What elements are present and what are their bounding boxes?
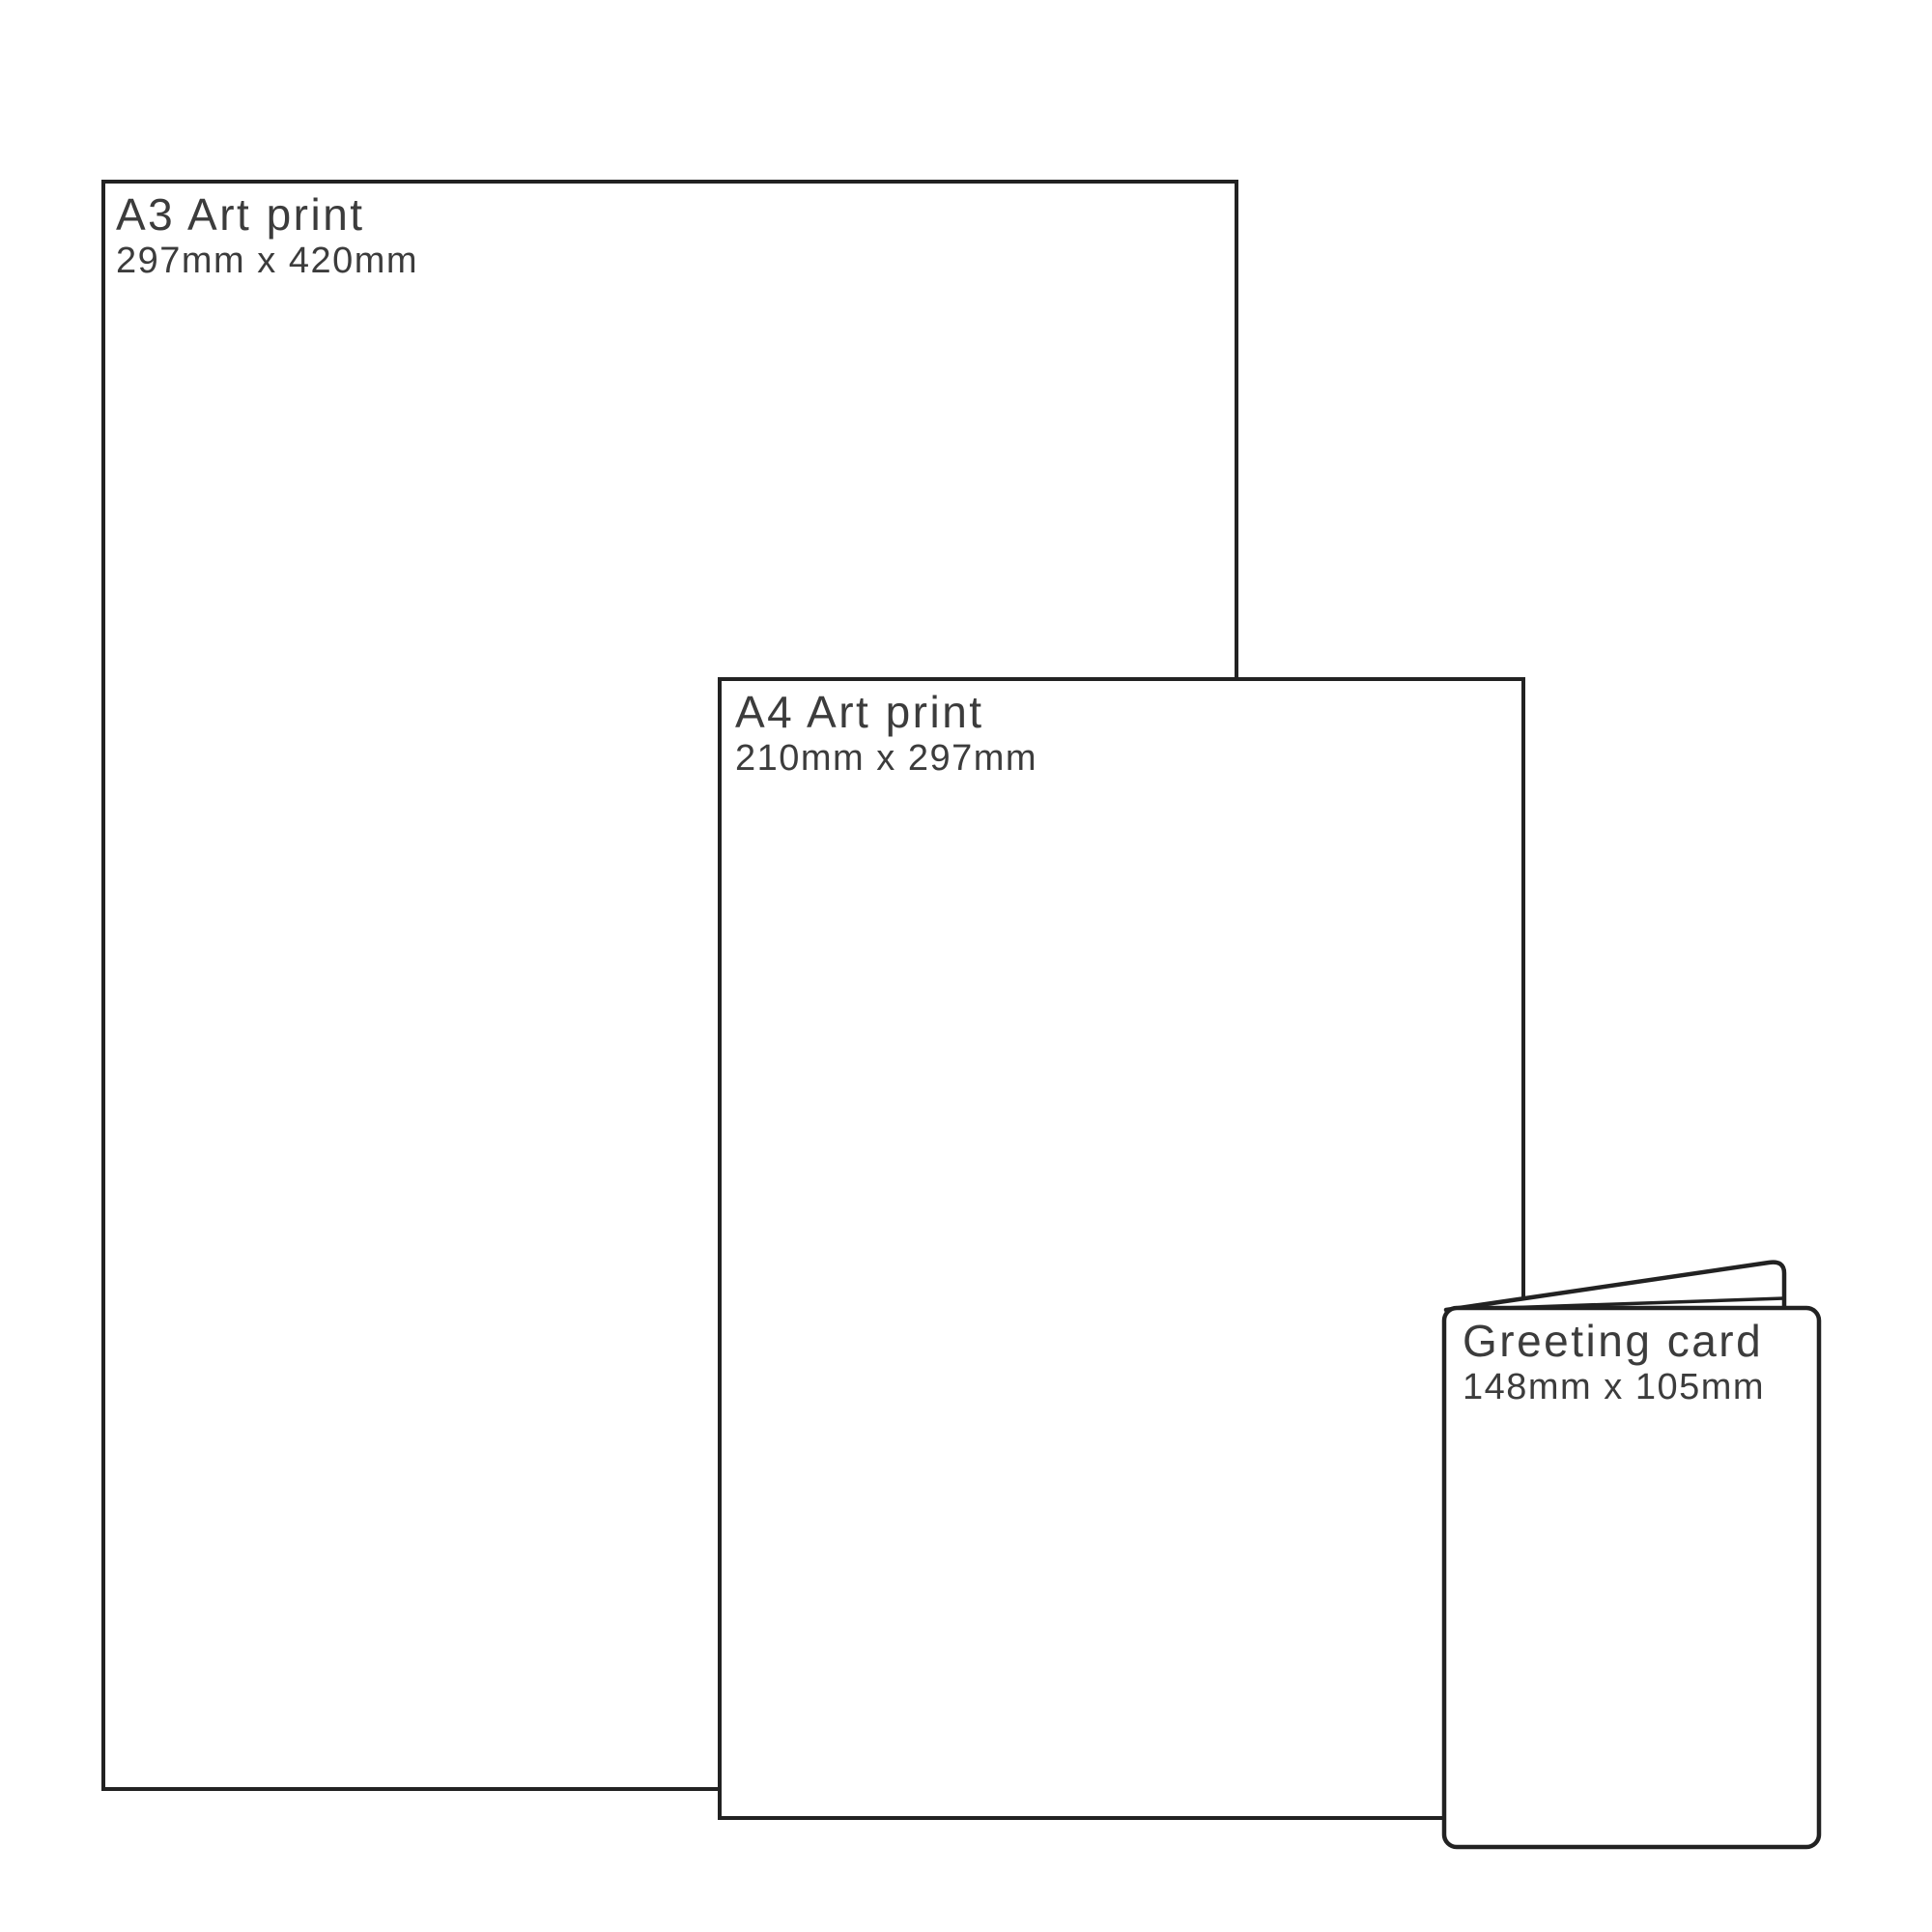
greeting-card-front <box>1444 1308 1819 1847</box>
size-comparison-diagram: A3 Art print 297mm x 420mm A4 Art print … <box>0 0 1932 1932</box>
greeting-card-outline <box>1401 1227 1855 1884</box>
